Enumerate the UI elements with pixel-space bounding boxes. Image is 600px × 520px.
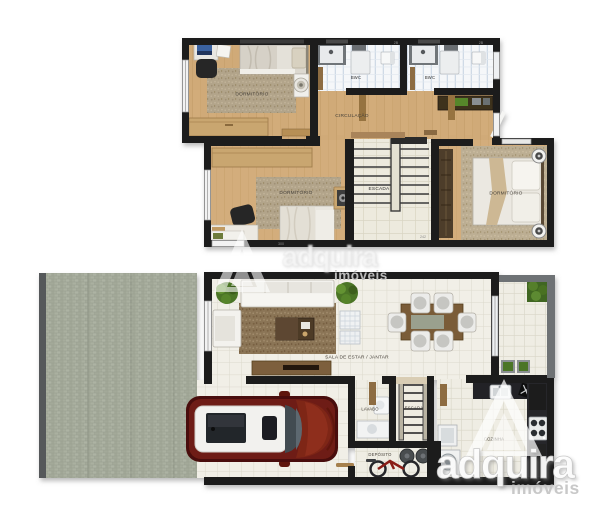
svg-text:242: 242: [420, 235, 426, 239]
svg-text:imóveis: imóveis: [334, 268, 388, 283]
svg-text:2B: 2B: [479, 41, 484, 45]
svg-text:imóveis: imóveis: [511, 478, 580, 498]
svg-text:BWC: BWC: [425, 75, 435, 80]
svg-text:ESCADA: ESCADA: [405, 406, 423, 411]
svg-text:DEPÓSITO: DEPÓSITO: [368, 452, 392, 457]
svg-text:SALA DE ESTAR / JANTAR: SALA DE ESTAR / JANTAR: [325, 355, 389, 361]
svg-text:2B: 2B: [394, 41, 399, 45]
svg-text:CIRCULAÇÃO: CIRCULAÇÃO: [335, 112, 369, 119]
svg-text:DORMITÓRIO: DORMITÓRIO: [279, 189, 312, 196]
svg-text:BWC: BWC: [351, 75, 361, 80]
svg-text:DORMITÓRIO: DORMITÓRIO: [235, 91, 268, 98]
svg-text:LAVABO: LAVABO: [361, 407, 379, 412]
svg-text:ESCADA: ESCADA: [369, 186, 391, 192]
svg-text:DORMITÓRIO: DORMITÓRIO: [489, 190, 522, 197]
